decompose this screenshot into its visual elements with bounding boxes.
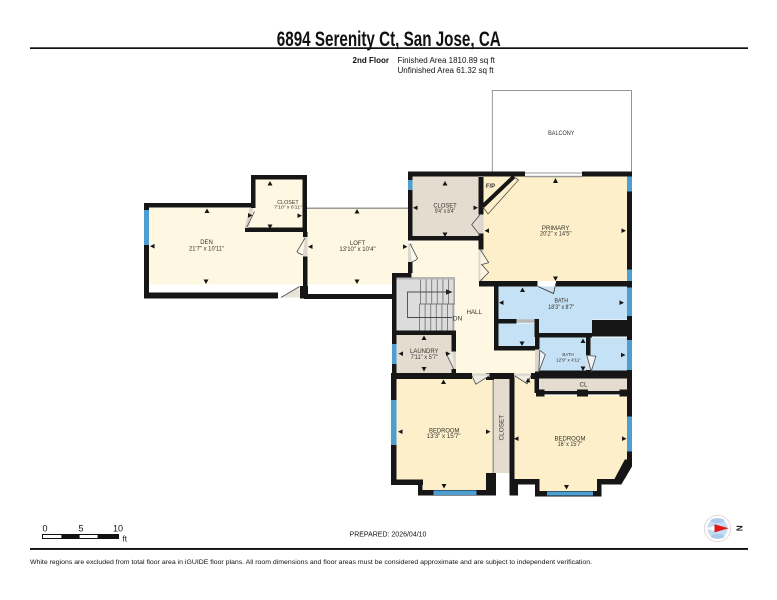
svg-text:7'11" x 5'7": 7'11" x 5'7" xyxy=(411,354,438,361)
svg-text:21'7" x 10'11": 21'7" x 10'11" xyxy=(189,246,224,253)
svg-text:ft: ft xyxy=(123,535,128,544)
svg-text:2nd Floor: 2nd Floor xyxy=(353,56,389,65)
svg-text:9'4" x 8'4": 9'4" x 8'4" xyxy=(435,208,455,215)
svg-text:Unfinished Area 61.32 sq ft: Unfinished Area 61.32 sq ft xyxy=(398,66,495,75)
svg-text:PREPARED: 2026/04/10: PREPARED: 2026/04/10 xyxy=(350,532,427,539)
svg-text:7'10" x 6'11": 7'10" x 6'11" xyxy=(274,205,302,210)
svg-text:16' x 15'7": 16' x 15'7" xyxy=(558,441,583,448)
svg-text:White regions are excluded fro: White regions are excluded from total fl… xyxy=(30,559,592,566)
svg-text:N: N xyxy=(734,525,743,531)
svg-text:0: 0 xyxy=(42,524,47,534)
svg-text:BALCONY: BALCONY xyxy=(548,130,575,137)
svg-text:13'3" x 15'7": 13'3" x 15'7" xyxy=(427,433,461,440)
svg-text:10: 10 xyxy=(113,524,123,534)
svg-text:F/P: F/P xyxy=(486,183,495,190)
svg-text:Finished Area 1810.89 sq ft: Finished Area 1810.89 sq ft xyxy=(398,56,496,65)
svg-text:12'9" x 4'11": 12'9" x 4'11" xyxy=(556,357,581,362)
svg-text:DN: DN xyxy=(453,315,463,322)
svg-text:HALL: HALL xyxy=(466,309,482,316)
svg-text:5: 5 xyxy=(78,524,83,534)
svg-text:18'3" x 8'7": 18'3" x 8'7" xyxy=(548,304,574,311)
svg-text:13'10" x 10'4": 13'10" x 10'4" xyxy=(339,246,375,253)
svg-text:CL: CL xyxy=(580,382,588,389)
svg-text:CLOSET: CLOSET xyxy=(498,415,505,441)
svg-text:20'2" x 14'5": 20'2" x 14'5" xyxy=(540,231,572,238)
